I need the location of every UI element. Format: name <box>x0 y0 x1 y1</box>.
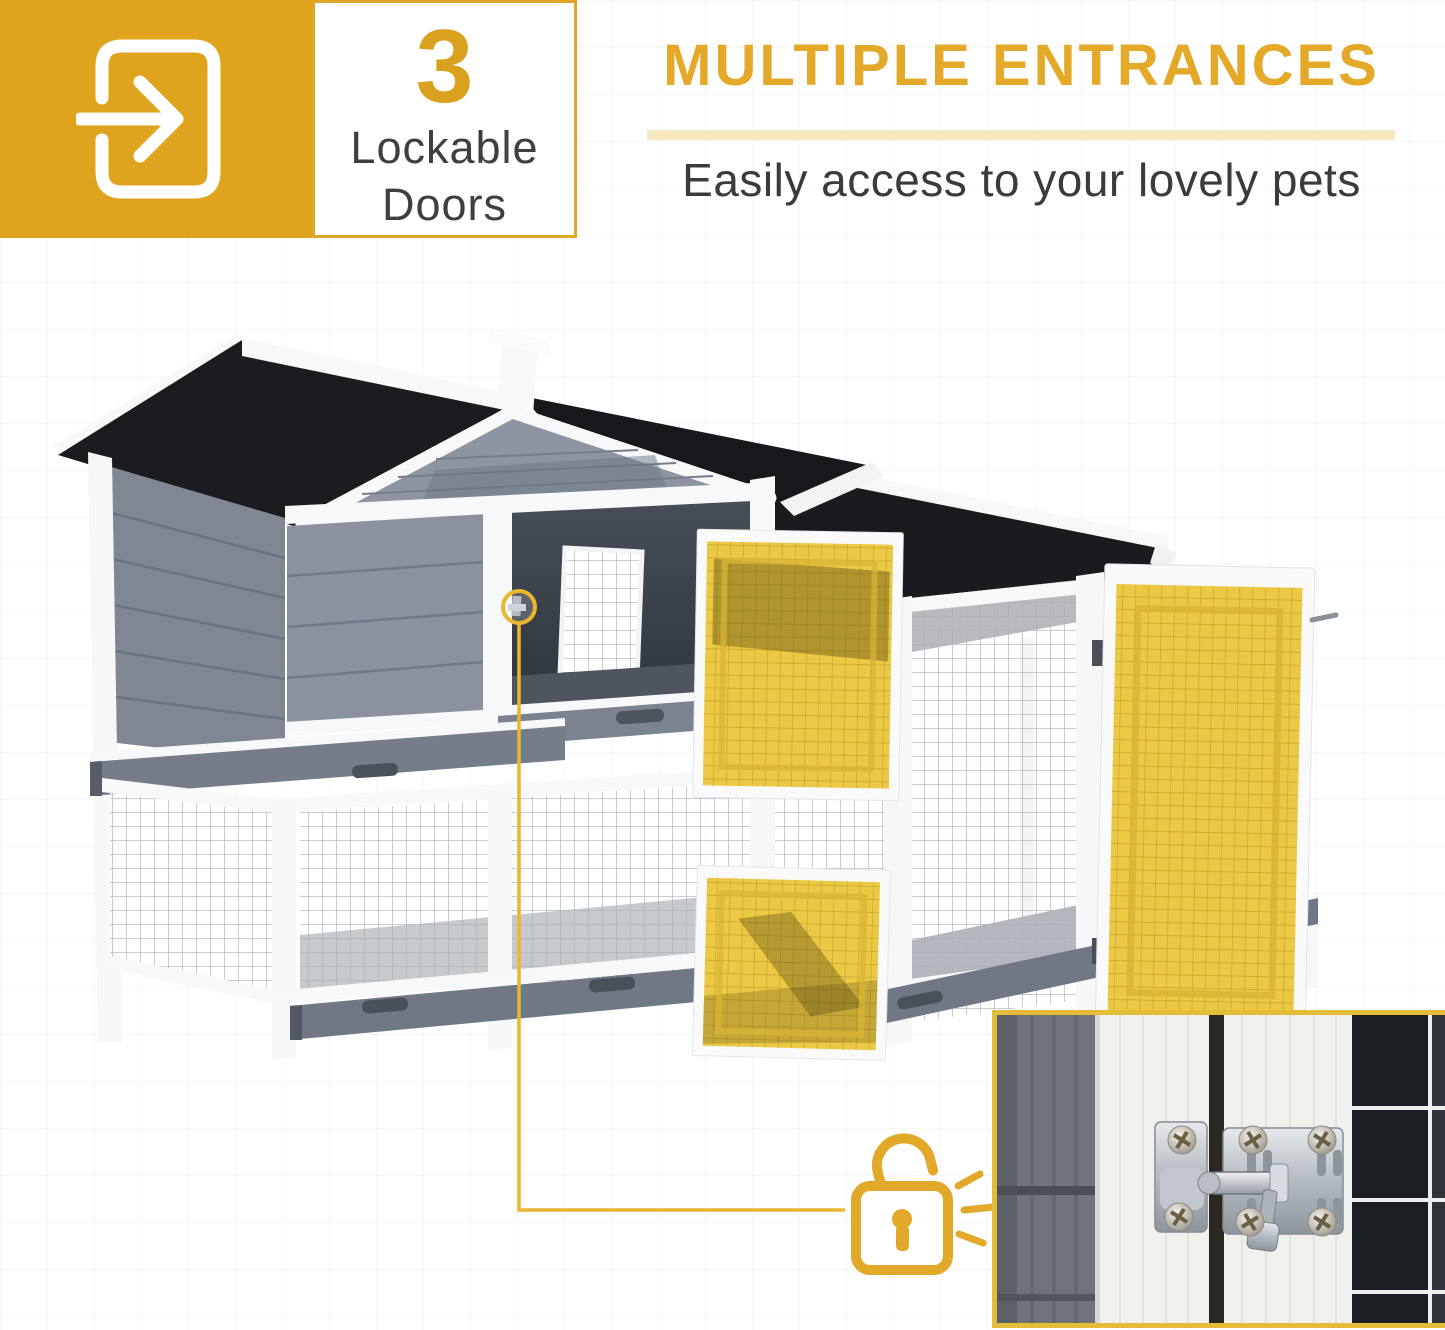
left-wall-planks <box>108 466 285 762</box>
inset-gray-seam2 <box>997 1294 1095 1301</box>
feature-badge-text-box: 3 Lockable Doors <box>312 0 577 238</box>
padlock-unlocked-icon <box>856 1133 994 1270</box>
inset-gray-seam1 <box>997 1186 1095 1195</box>
lock-detail-inset <box>992 1010 1445 1328</box>
inset-photo <box>997 1015 1445 1323</box>
run-front-mesh-left <box>300 800 488 1000</box>
headline-block: MULTIPLE ENTRANCES Easily access to your… <box>600 0 1443 240</box>
inset-gray-wood-edge <box>997 1015 1017 1323</box>
yellow-door-right <box>1092 564 1336 1038</box>
padlock-keyhole-stem <box>896 1225 909 1251</box>
latch-highlight-circle <box>503 591 535 623</box>
inset-mesh-area <box>1348 1015 1445 1323</box>
badge-count: 3 <box>315 15 574 119</box>
page-title: MULTIPLE ENTRANCES <box>600 32 1443 99</box>
inset-latch-hardware <box>1155 1122 1343 1252</box>
inset-white-wood-edge <box>1095 1015 1100 1323</box>
badge-label-line2: Doors <box>315 176 574 233</box>
door-upper-shadow-band <box>712 559 890 662</box>
latch-bolt-end <box>1198 1172 1220 1194</box>
upper-front-gray-panel <box>287 514 483 728</box>
badge-label-line1: Lockable <box>315 119 574 176</box>
yellow-door-upper <box>693 529 904 801</box>
door-latch-highlight <box>503 591 535 623</box>
yellow-door-lower <box>692 865 890 1060</box>
padlock-click-dashes <box>958 1174 994 1243</box>
run-bottom-tray-cap <box>290 1005 302 1040</box>
enter-arrow-icon <box>76 34 236 204</box>
title-divider <box>647 130 1395 140</box>
feature-badge-icon-box <box>0 0 312 238</box>
tray2-end-cap <box>90 761 102 796</box>
inset-door-gap <box>1209 1015 1224 1323</box>
product-feature-card: 3 Lockable Doors MULTIPLE ENTRANCES Easi… <box>0 0 1445 1330</box>
page-subtitle: Easily access to your lovely pets <box>600 153 1443 207</box>
door-right-latch-rod <box>1312 615 1336 620</box>
